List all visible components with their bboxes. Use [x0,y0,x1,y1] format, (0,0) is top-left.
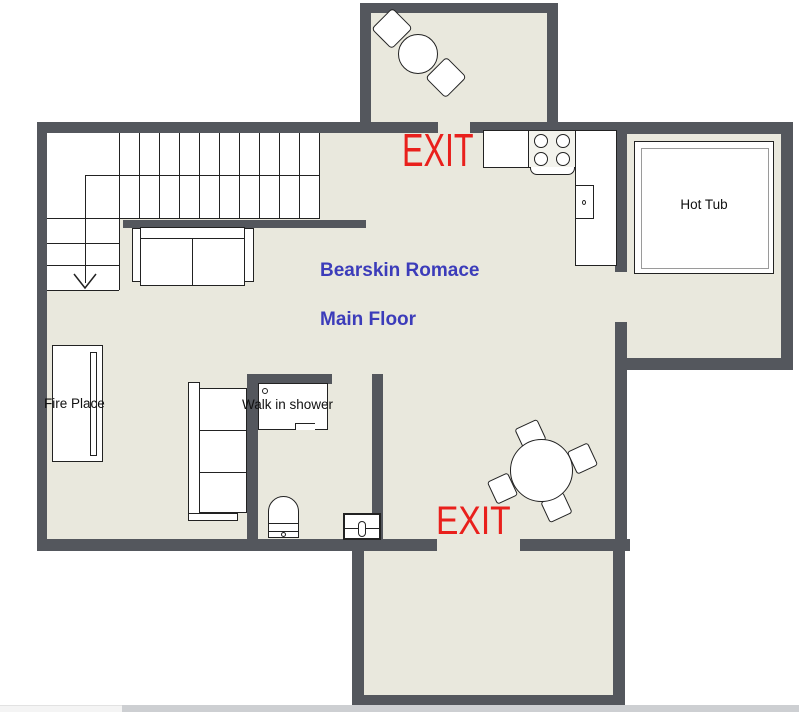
hot-tub-deck-right-wall [781,122,793,370]
sofa-cushion-line [199,430,247,431]
shower-door-notch [295,423,315,430]
stove-burner-icon [556,152,570,166]
floor-plan: Hot Tub Fire Place Walk in shower Bearsk… [0,0,799,712]
stair-tread-line [119,133,120,290]
toilet-tank-line [269,523,298,524]
dining-round-table [510,439,573,502]
bottom-deck-bottom-wall [352,695,625,705]
stair-edge-line [319,133,320,218]
kitchen-sink-knob-icon [582,200,586,205]
bottom-wall-right-segment [520,539,630,551]
door-opening-hot-tub-deck [615,272,627,322]
stove-burner-icon [534,152,548,166]
shower-label: Walk in shower [242,398,333,413]
stove-burner-icon [556,134,570,148]
sofa-vertical-foot [188,513,238,521]
shower-drain-icon [262,388,268,394]
hot-tub-deck-bottom-wall [615,358,793,370]
hot-tub-deck-top-wall [627,122,793,134]
horizontal-scrollbar-thumb[interactable] [122,705,799,712]
top-deck-left-wall [360,3,371,122]
bottom-deck-floor [364,551,613,695]
top-wall-left-segment [37,122,438,133]
stair-mid-line [85,175,319,176]
exit-label-bottom: EXIT [436,501,511,541]
stair-direction-line [85,175,86,283]
faucet-icon [358,521,366,537]
stove-burner-icon [534,134,548,148]
plan-subtitle: Main Floor [320,310,416,331]
bottom-deck-right-wall [613,551,625,705]
plan-title: Bearskin Romace [320,261,479,282]
stair-tread-line [47,290,119,291]
kitchen-counter-top [483,130,529,168]
left-wall [37,122,47,551]
stair-tread-line [47,265,119,266]
stair-tread-line [47,243,119,244]
stair-edge-line [47,218,320,219]
stove-front-edge [530,167,575,175]
exit-label-top: EXIT [402,127,474,173]
sofa-vertical [199,388,247,513]
sofa-cushion-line [199,472,247,473]
deck-round-table [398,34,438,74]
fireplace-label: Fire Place [44,397,105,412]
stair-down-arrow-icon [72,272,98,290]
bottom-deck-left-wall [352,551,364,705]
right-wall-lower-segment [615,322,627,539]
top-deck-right-wall [547,3,558,122]
sofa-cushion-line [192,238,193,286]
sofa-arm [244,228,254,282]
hot-tub-label: Hot Tub [634,198,774,213]
toilet-flush-icon [281,532,286,537]
